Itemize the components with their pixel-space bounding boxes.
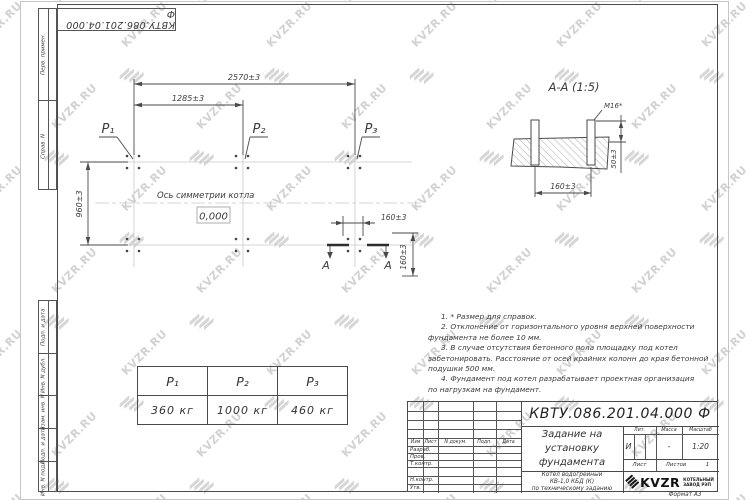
- lit-header: Лит.: [623, 426, 656, 434]
- dim-offset-v: 160±3: [399, 244, 408, 270]
- side-cell: Подп. и дата: [39, 428, 56, 461]
- sheets-value: 1: [706, 462, 710, 468]
- scale-value: 1:20: [682, 434, 719, 459]
- grid-line: [496, 402, 497, 493]
- scale-header: Масштаб: [682, 426, 719, 434]
- mass-value: -: [656, 434, 682, 459]
- grid-line: [634, 434, 635, 459]
- top-stamp: КВТУ.086.201.04.000 Ф: [57, 8, 176, 31]
- load-point-label-p2: P₂: [252, 122, 265, 137]
- side-label-podp-data-1: Подп. и дата: [39, 301, 48, 353]
- product-line: по техническому заданию: [532, 486, 613, 493]
- side-panel-bottom: Подп. и дата Инв. N дубл. Взам. инв. N П…: [38, 300, 57, 492]
- side-panel-top: Перв. примен. Справ. N: [38, 8, 57, 190]
- drawing-title-line: установку: [545, 442, 599, 456]
- side-label-podp-data-2: Подп. и дата: [39, 429, 48, 461]
- note-line: по нагрузкам на фундамент.: [428, 385, 728, 395]
- technical-notes: 1. * Размер для справок. 2. Отклонение о…: [428, 312, 728, 395]
- kvzr-logo-subtitle: КОТЕЛЬНЫЙ ЗАВОД РЭП: [683, 477, 714, 487]
- col-podp: Подп.: [473, 438, 496, 446]
- grid-line: [408, 467, 521, 468]
- side-label-perv-primen: Перв. примен.: [39, 9, 48, 100]
- grid-line: [408, 420, 521, 421]
- note-line: 3. В случае отсутствия бетонного пола пл…: [428, 343, 728, 353]
- dim-offset-h: 160±3: [381, 213, 407, 222]
- row-nkontr: Н.контр.: [408, 476, 440, 484]
- drawing-title: Задание на установку фундамента: [521, 426, 623, 471]
- cut-letter-left: А: [321, 259, 330, 272]
- axis-caption: Ось симметрии котла: [157, 191, 254, 201]
- drawing-title-line: фундамента: [539, 456, 605, 470]
- col-data: Дата: [496, 438, 521, 446]
- product-line: Котел водогрейный: [542, 472, 603, 479]
- note-line: 4. Фундамент под котел разрабатывает про…: [428, 374, 728, 384]
- load-table-header-p2: P₂: [208, 367, 278, 396]
- load-value-p3: 460 кг: [278, 396, 348, 425]
- logo-sub-line: ЗАВОД РЭП: [683, 482, 714, 487]
- drawing-title-line: Задание на: [542, 428, 603, 442]
- kvzr-logo-text: KVZR: [640, 475, 680, 490]
- dim-bolt-spacing: 160±3: [550, 182, 576, 191]
- grid-line: [645, 434, 646, 459]
- document-number: КВТУ.086.201.04.000 Ф: [521, 402, 719, 426]
- manufacturer-logo: KVZR КОТЕЛЬНЫЙ ЗАВОД РЭП: [623, 471, 719, 493]
- product-description: Котел водогрейный КВ-1,0 КБД (К) по техн…: [521, 471, 623, 493]
- row-tkontr: Т.контр.: [408, 460, 440, 467]
- mass-header: Масса: [656, 426, 682, 434]
- level-mark: 0,000: [199, 212, 228, 223]
- col-ndocum: N докум.: [438, 438, 473, 446]
- grid-line: [408, 411, 521, 412]
- load-point-label-p1: P₁: [101, 122, 114, 137]
- anchor-bolt-right: [587, 120, 595, 165]
- note-line: подушки 500 мм.: [428, 364, 728, 374]
- note-line: 1. * Размер для справок.: [428, 312, 728, 322]
- load-value-p2: 1000 кг: [208, 396, 278, 425]
- kvzr-logo-icon: [625, 475, 640, 490]
- load-table-header-p3: P₃: [278, 367, 348, 396]
- title-block: КВТУ.086.201.04.000 Ф Задание на установ…: [407, 401, 718, 492]
- side-cell: Инв. N дубл.: [39, 353, 56, 395]
- grid-line: [473, 402, 474, 493]
- dim-half: 1285±3: [172, 94, 204, 103]
- lit-value: И: [623, 434, 634, 459]
- anchor-bolt-dots: [126, 155, 362, 253]
- sheet-label: Лист: [623, 459, 656, 471]
- row-razrab: Разраб.: [408, 446, 440, 453]
- section-view: А-А (1:5) М16* 50±3 160±3: [490, 75, 660, 215]
- side-cell: Перв. примен.: [39, 9, 56, 100]
- grid-line: [408, 429, 521, 430]
- sheets-label: Листов: [666, 462, 687, 468]
- side-label-vzam-inv: Взам. инв. N: [39, 396, 48, 428]
- load-table-header-p1: P₁: [138, 367, 208, 396]
- side-cell: Инв. N подл.: [39, 461, 56, 493]
- note-line: 2. Отклонение от горизонтального уровня …: [428, 322, 728, 332]
- bolt-size-label: М16*: [604, 102, 623, 110]
- col-izm: Изм: [408, 438, 423, 446]
- side-label-sprav-n: Справ. N: [39, 101, 48, 191]
- note-line: фундамента не более 10 мм.: [428, 333, 728, 343]
- dim-protrusion: 50±3: [610, 149, 618, 168]
- row-utv: Утв.: [408, 484, 440, 492]
- side-label-inv-podl: Инв. N подл.: [39, 462, 48, 493]
- row-prov: Пров.: [408, 453, 440, 460]
- dim-total: 2570±3: [228, 73, 260, 82]
- side-cell: Подп. и дата: [39, 301, 56, 353]
- load-table: P₁ P₂ P₃ 360 кг 1000 кг 460 кг: [137, 366, 348, 425]
- side-cell: Взам. инв. N: [39, 395, 56, 428]
- format-label: Формат А3: [640, 492, 730, 498]
- sheets-cell: Листов 1: [656, 459, 719, 471]
- side-label-inv-dubl: Инв. N дубл.: [39, 354, 48, 395]
- product-line: КВ-1,0 КБД (К): [550, 479, 594, 486]
- anchor-bolt-left: [531, 120, 539, 165]
- col-list: Лист: [423, 438, 438, 446]
- dim-depth: 960±3: [75, 190, 84, 217]
- plan-view: 2570±3 1285±3 960±3 P₁ P₂ P₃ Ось симметр…: [60, 55, 480, 325]
- section-title: А-А (1:5): [547, 80, 599, 94]
- cut-letter-right: А: [383, 259, 392, 272]
- load-value-p1: 360 кг: [138, 396, 208, 425]
- sheet: КВТУ.086.201.04.000 Ф Перв. примен. Спра…: [0, 0, 750, 500]
- side-cell: Справ. N: [39, 100, 56, 191]
- top-stamp-text: КВТУ.086.201.04.000 Ф: [58, 9, 175, 31]
- note-line: забетонировать. Расстояние от осей крайн…: [428, 354, 728, 364]
- load-point-label-p3: P₃: [364, 122, 377, 137]
